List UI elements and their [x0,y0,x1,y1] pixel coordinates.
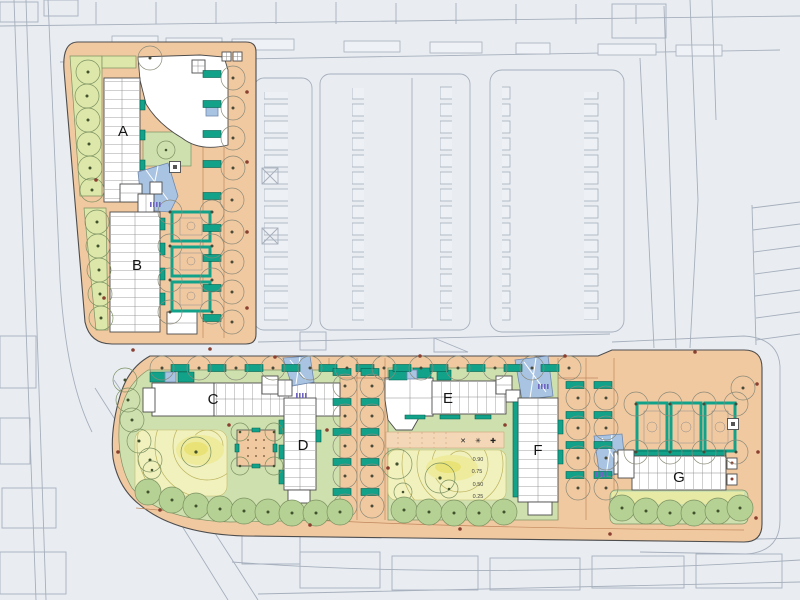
play-strip: ✕ ✳ ✚ [386,432,504,448]
parking-bay-hedge [594,412,612,419]
garden-plaza [235,428,277,468]
shrub-tree [303,500,329,526]
parking-bay-hedge [203,71,221,78]
shrub-tree [657,500,683,526]
g-garden-courts [637,403,735,451]
parking-bay-hedge [594,442,612,449]
shrub-tree [391,497,417,523]
parking-bay-hedge [203,131,221,138]
parking-bay-hedge [594,382,612,389]
street-lamp [756,450,760,454]
block-label-f: F [533,442,542,459]
block-label-d: D [298,437,309,454]
shrub-tree [183,493,209,519]
street-lamp [116,450,120,454]
street-lamp [308,523,312,527]
context-terrace-blocks [254,70,624,332]
shrub-tree [466,500,492,526]
street-lamp [418,354,422,358]
contour-label-075: 0.75 [472,469,483,475]
parcel-north [64,42,256,344]
block-label-e: E [443,390,453,407]
street-lamp [458,527,462,531]
block-label-b: B [132,257,142,274]
block-label-g: G [673,469,685,486]
shrub-tree [609,495,635,521]
shrub-tree [255,499,281,525]
building-a [104,78,140,202]
street-lamp [273,355,277,359]
kiosk [728,419,739,430]
street-lamp [245,306,249,310]
street-lamp [386,466,390,470]
shrub-tree [727,495,753,521]
shrub-tree [159,487,185,513]
site-plan-page: ✕ ✳ ✚ 0.90 0.75 0.50 0.25 [0,0,800,600]
parking-bay-hedge [566,382,584,389]
parking-bay-hedge [203,101,221,108]
shrub-tree [416,499,442,525]
shrub-tree [441,500,467,526]
street-lamp [755,382,759,386]
parking-bay-hedge [566,472,584,479]
street-lamp [227,423,231,427]
parking-bay-hedge [566,442,584,449]
shrub-tree [491,499,517,525]
street-lamp [94,178,98,182]
parking-bay-hedge [566,412,584,419]
street-lamp [158,508,162,512]
contour-label-025: 0.25 [473,494,484,500]
shrub-tree [135,479,161,505]
parking-bay-hedge [203,225,221,232]
block-label-a: A [118,123,128,140]
block-label-c: C [208,391,219,408]
street-lamp [102,296,106,300]
street-lamp [245,230,249,234]
contour-label-050: 0.50 [473,482,484,488]
street-lamp [563,354,567,358]
shrub-tree [207,496,233,522]
site-plan-drawing: ✕ ✳ ✚ 0.90 0.75 0.50 0.25 [0,0,800,600]
parking-bay-hedge [203,315,221,322]
street-lamp [754,516,758,520]
play-marking-1: ✕ [460,437,466,445]
kiosk [170,162,181,173]
contour-label-090: 0.90 [473,457,484,463]
shrub-tree [327,499,353,525]
street-lamp [325,428,329,432]
street-lamp [208,347,212,351]
street-lamp [245,90,249,94]
shrub-tree [681,500,707,526]
street-lamp [608,532,612,536]
street-lamp [693,350,697,354]
street-lamp [131,348,135,352]
street-lamp [503,423,507,427]
parking-bay-hedge [203,161,221,168]
shrub-tree [633,498,659,524]
shrub-tree [231,498,257,524]
play-marking-2: ✳ [475,437,481,445]
play-marking-3: ✚ [490,437,496,445]
parking-bay-hedge [203,193,221,200]
shrub-tree [279,500,305,526]
street-lamp [245,160,249,164]
